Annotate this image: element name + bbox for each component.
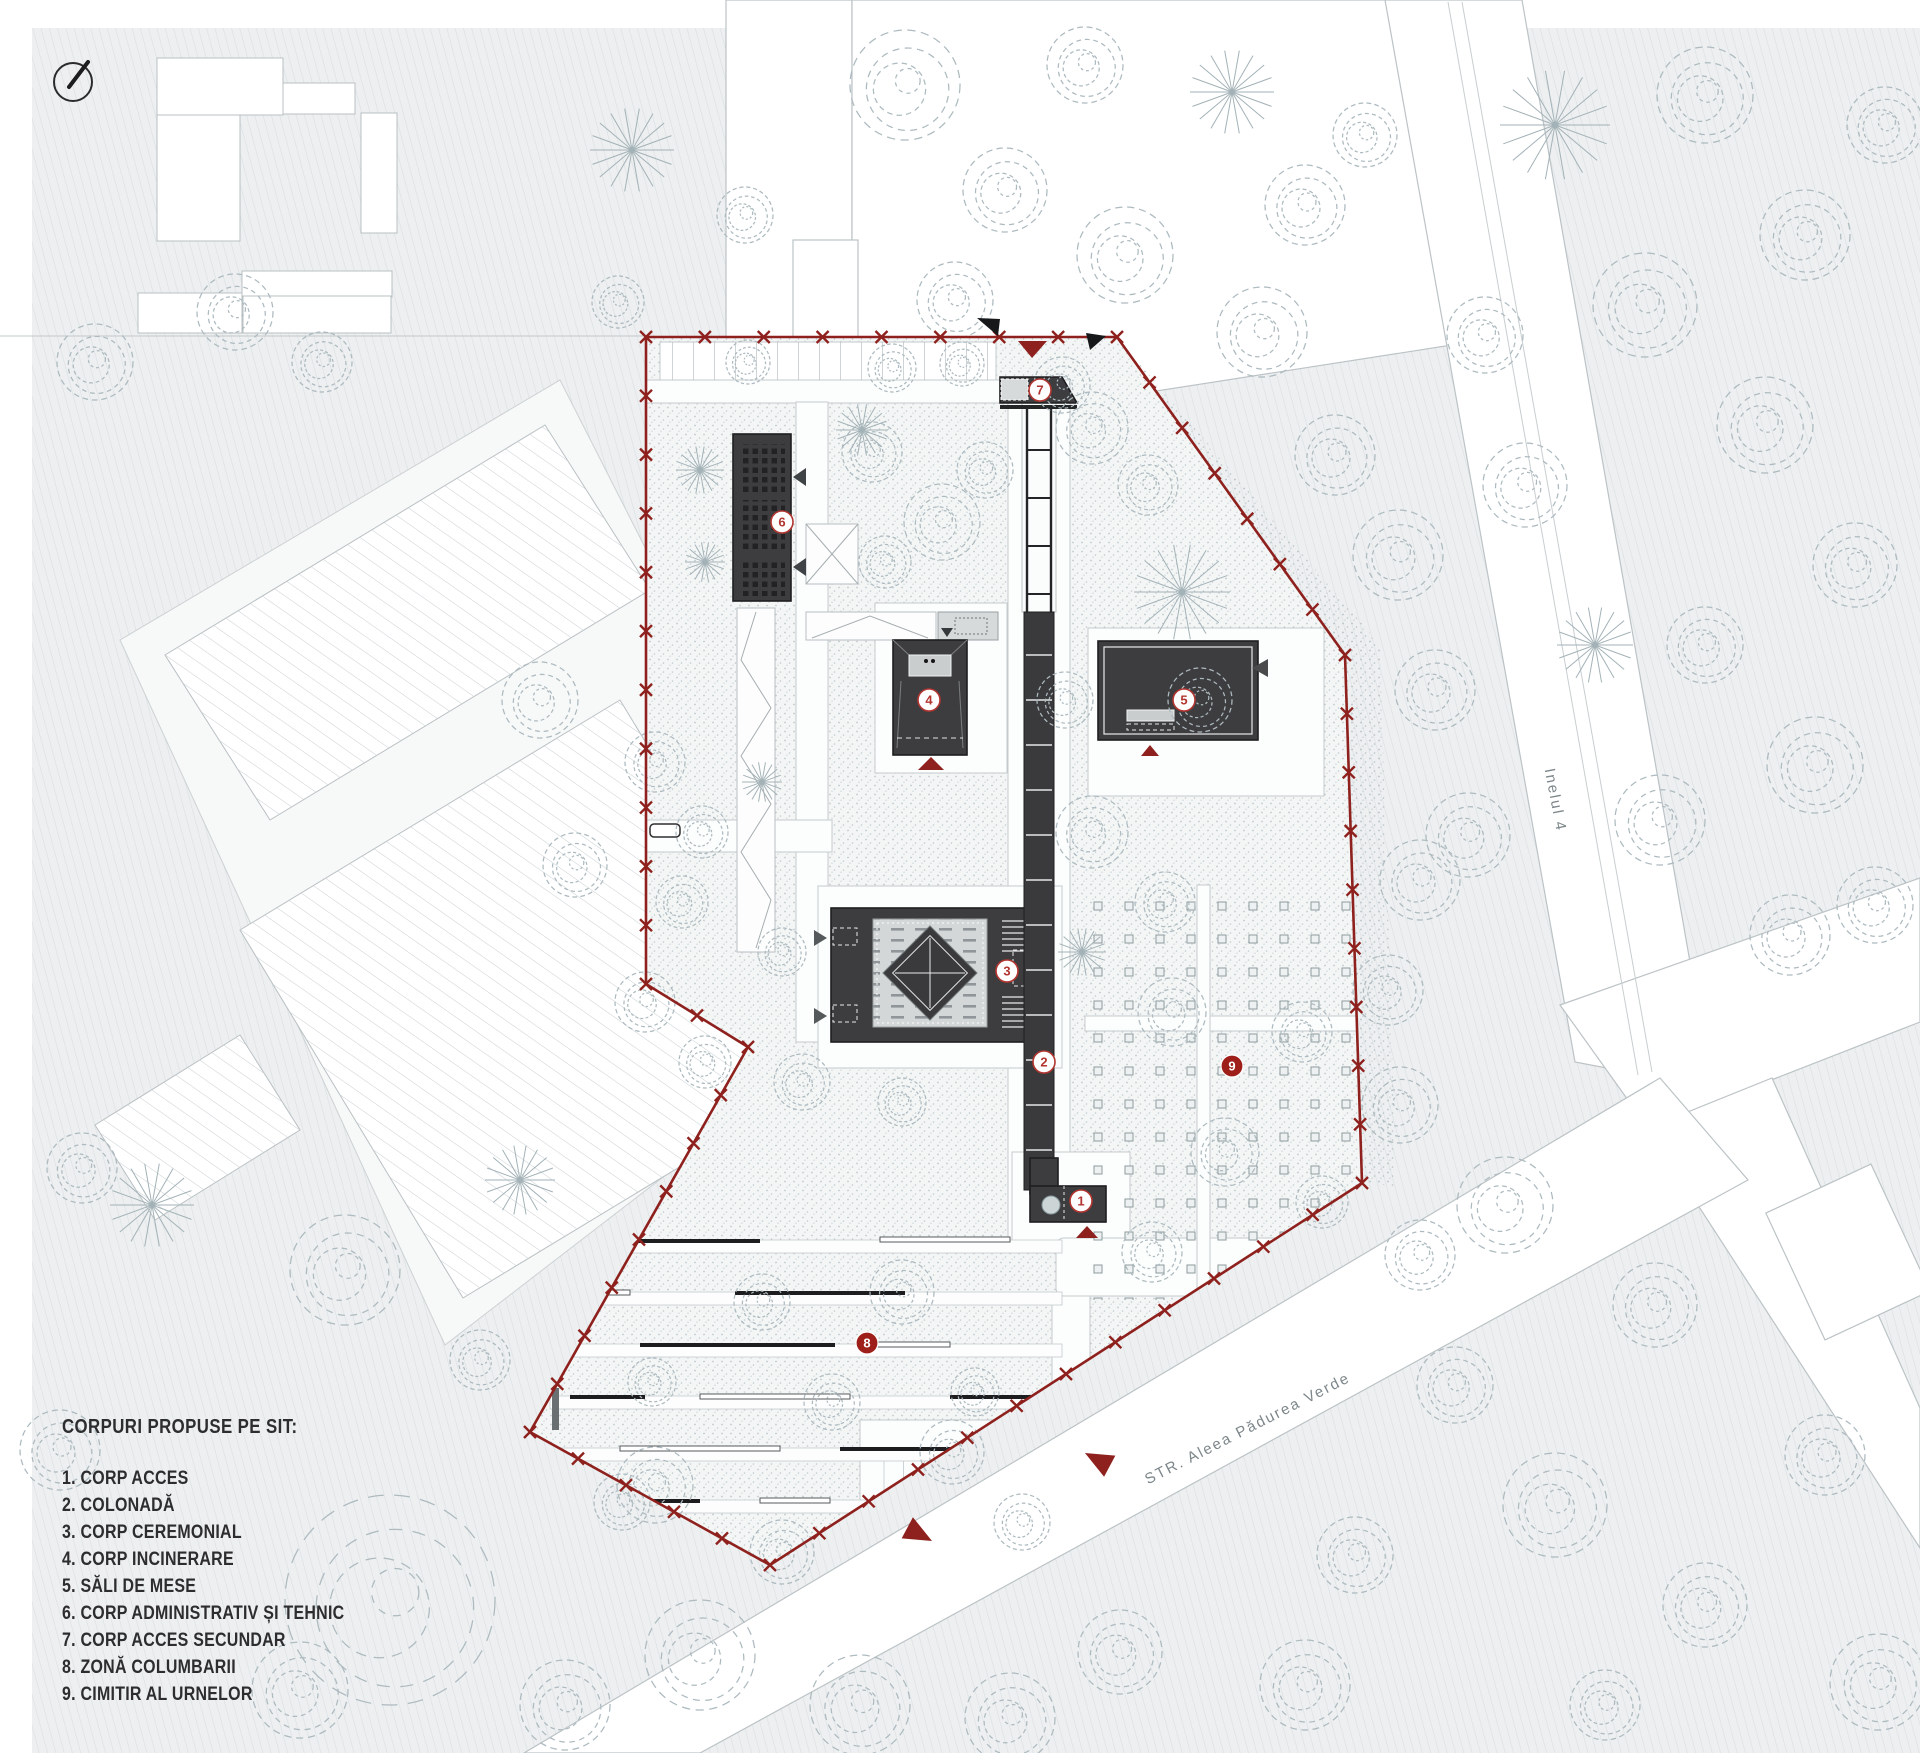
legend-item: 6. CORP ADMINISTRATIV ȘI TEHNIC [62, 1600, 344, 1627]
plan-marker-6: 6 [771, 511, 793, 533]
plan-marker-5: 5 [1173, 689, 1195, 711]
svg-text:1: 1 [1077, 1194, 1084, 1209]
legend-item: 9. CIMITIR AL URNELOR [62, 1681, 344, 1708]
plan-marker-1: 1 [1070, 1190, 1092, 1212]
legend-item: 5. SĂLI DE MESE [62, 1573, 344, 1600]
legend-item: 4. CORP INCINERARE [62, 1546, 344, 1573]
site-plan-canvas: 1 2 3 4 5 6 7 8 9 CORPURI PROPUSE PE SIT… [0, 0, 1920, 1753]
legend-item: 7. CORP ACCES SECUNDAR [62, 1627, 344, 1654]
svg-text:8: 8 [863, 1336, 870, 1351]
plan-marker-2: 2 [1033, 1051, 1055, 1073]
car-icon [650, 824, 680, 837]
svg-text:7: 7 [1036, 383, 1043, 398]
plan-marker-9: 9 [1221, 1055, 1243, 1077]
legend: CORPURI PROPUSE PE SIT: 1. CORP ACCES 2.… [62, 1416, 344, 1708]
road-mouth-north [852, 0, 1452, 392]
svg-text:2: 2 [1040, 1055, 1047, 1070]
legend-item: 2. COLONADĂ [62, 1492, 344, 1519]
svg-text:4: 4 [925, 693, 933, 708]
legend-item: 8. ZONĂ COLUMBARII [62, 1654, 344, 1681]
legend-item: 3. CORP CEREMONIAL [62, 1519, 344, 1546]
plan-marker-7: 7 [1029, 379, 1051, 401]
svg-text:3: 3 [1003, 964, 1010, 979]
legend-title: CORPURI PROPUSE PE SIT: [62, 1416, 344, 1439]
svg-text:6: 6 [778, 515, 785, 530]
legend-item: 1. CORP ACCES [62, 1465, 344, 1492]
plan-marker-8: 8 [856, 1332, 878, 1354]
parking-north [660, 342, 996, 380]
svg-text:9: 9 [1228, 1059, 1235, 1074]
plan-marker-3: 3 [996, 960, 1018, 982]
svg-text:5: 5 [1180, 693, 1187, 708]
plan-marker-4: 4 [918, 689, 940, 711]
